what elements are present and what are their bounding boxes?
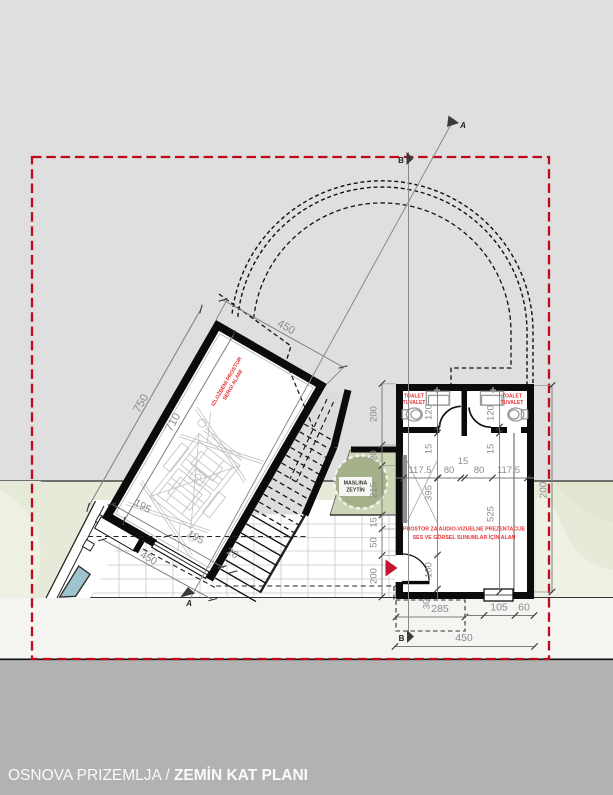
svg-text:TUVALET: TUVALET: [403, 400, 426, 406]
svg-text:SES VE GÖRSEL SUNUMLAR İÇİN AL: SES VE GÖRSEL SUNUMLAR İÇİN ALAN: [413, 534, 516, 541]
svg-text:TOALET: TOALET: [404, 394, 424, 400]
svg-text:15: 15: [458, 456, 469, 467]
svg-text:PROSTOR ZA AUDIO-VIZUELNE PREZ: PROSTOR ZA AUDIO-VIZUELNE PREZENTACIJE: [403, 527, 526, 533]
svg-text:ZEYTİN: ZEYTİN: [346, 487, 365, 494]
svg-text:B: B: [399, 634, 405, 643]
svg-text:15: 15: [369, 517, 380, 528]
svg-text:200: 200: [369, 568, 380, 584]
svg-text:105: 105: [490, 602, 508, 614]
svg-text:200: 200: [369, 406, 380, 422]
svg-text:525: 525: [486, 506, 497, 522]
svg-text:MASLINA: MASLINA: [344, 481, 368, 487]
svg-text:50: 50: [369, 537, 380, 548]
svg-text:TUVALET: TUVALET: [501, 400, 524, 406]
svg-text:120: 120: [424, 404, 435, 420]
svg-text:215: 215: [369, 482, 380, 498]
svg-text:100: 100: [424, 562, 435, 578]
svg-text:80: 80: [444, 465, 455, 476]
svg-text:60: 60: [518, 602, 530, 614]
svg-text:15: 15: [424, 444, 435, 455]
svg-text:15: 15: [486, 444, 497, 455]
svg-text:395: 395: [424, 485, 435, 501]
svg-text:A: A: [459, 121, 466, 130]
svg-text:117.5: 117.5: [408, 465, 431, 476]
svg-text:200: 200: [539, 481, 550, 498]
svg-text:80: 80: [474, 465, 485, 476]
svg-text:450: 450: [455, 632, 473, 644]
svg-text:TOALET: TOALET: [502, 394, 522, 400]
svg-text:20: 20: [369, 450, 380, 461]
svg-text:117.5: 117.5: [497, 465, 520, 476]
svg-text:A: A: [185, 599, 192, 608]
svg-text:OSNOVA PRIZEMLJA / ZEMİN KAT P: OSNOVA PRIZEMLJA / ZEMİN KAT PLANI: [8, 767, 308, 784]
svg-text:285: 285: [431, 603, 449, 615]
svg-text:120: 120: [486, 405, 497, 421]
svg-text:B: B: [398, 156, 404, 165]
